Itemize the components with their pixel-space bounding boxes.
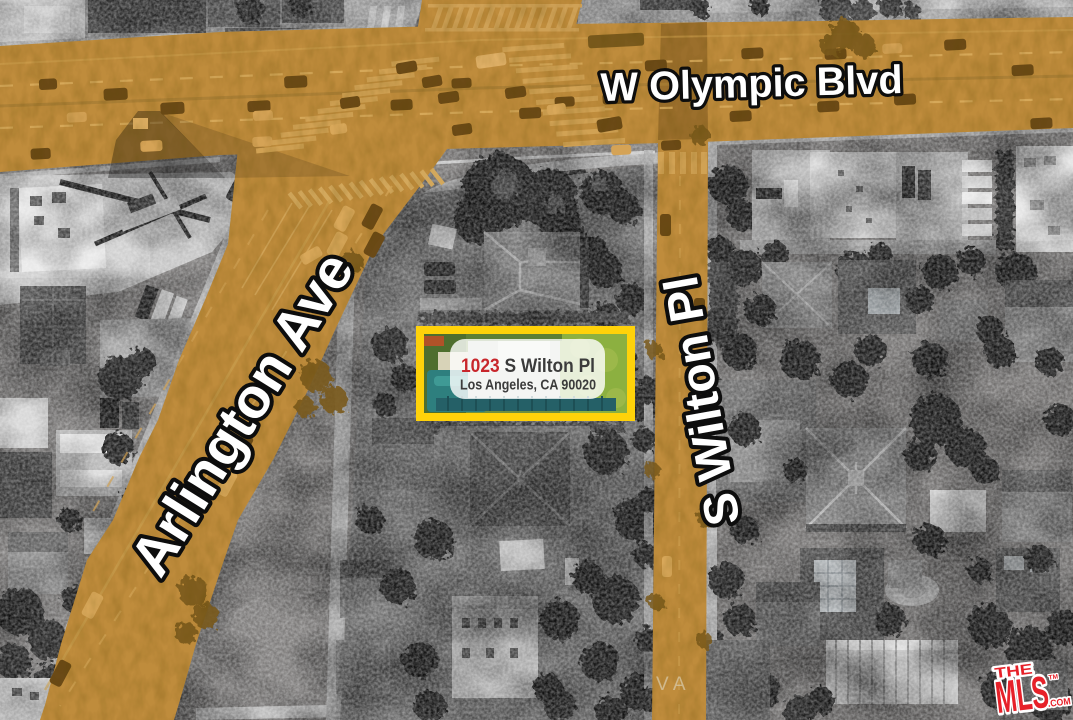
svg-text:TM: TM xyxy=(1048,674,1058,682)
svg-text:Los Angeles, CA 90020: Los Angeles, CA 90020 xyxy=(460,377,596,394)
svg-text:MLS: MLS xyxy=(993,666,1052,720)
svg-text:W Olympic Blvd: W Olympic Blvd xyxy=(600,58,903,110)
svg-text:1023 S Wilton Pl: 1023 S Wilton Pl xyxy=(461,356,595,377)
svg-text:V A: V A xyxy=(656,674,686,695)
